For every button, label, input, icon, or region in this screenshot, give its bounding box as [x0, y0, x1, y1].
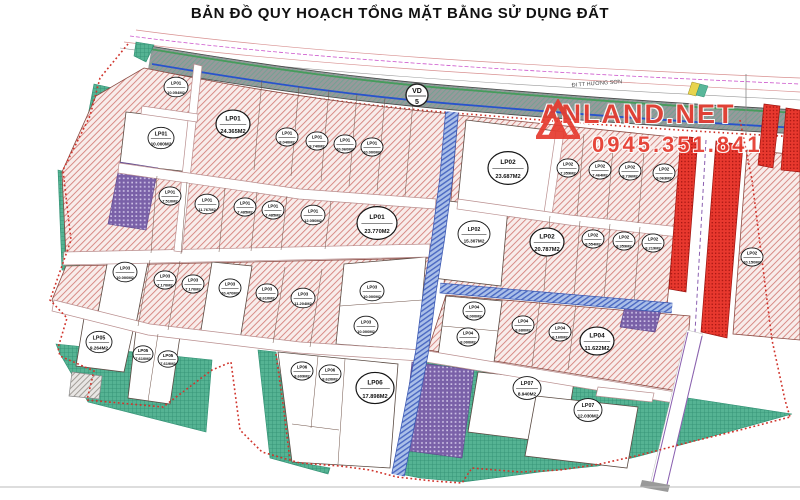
- plot-code: LP03: [188, 278, 199, 283]
- plot-code: LP03: [361, 319, 372, 324]
- plot-area: 9.740M2: [309, 143, 325, 148]
- plot-marker-lp01: LP0124.365M2: [216, 110, 250, 138]
- plot-code: LP01: [367, 141, 378, 146]
- plot-marker-lp06: LP0617.898M2: [356, 372, 394, 403]
- plot-area: 8.620M2: [322, 376, 338, 381]
- plot-area: 7.485M2: [237, 209, 253, 214]
- plot-area: 8.000M2: [460, 339, 476, 344]
- plot-code: LP01: [340, 138, 351, 143]
- planning-map-page: LP0110.054M2LP0110.000M2LP0124.365M2LP01…: [0, 0, 800, 500]
- plot-area: 10.000M2: [363, 149, 382, 154]
- plot-marker-lp04: LP048.000M2: [463, 302, 485, 320]
- plot-area: 10.000M2: [357, 329, 376, 334]
- plot-marker-lp02: LP0223.687M2: [488, 152, 528, 185]
- direction-label-ne: ĐI TT HƯƠNG SƠN: [571, 79, 622, 89]
- plot-area: 11.204M2: [294, 301, 312, 306]
- watermark-phone: 0945.351.841: [592, 132, 800, 158]
- pink-block-east: [733, 150, 800, 340]
- plot-code: LP01: [369, 214, 385, 221]
- plot-marker-lp05: LP059.264M2: [86, 331, 112, 352]
- plot-code: LP01: [225, 116, 241, 123]
- plot-marker-lp03: LP0311.204M2: [291, 288, 315, 308]
- plot-code: LP01: [308, 208, 319, 213]
- plot-marker-lp07: LP0712.030M2: [574, 399, 602, 422]
- plot-code: LP04: [463, 331, 474, 336]
- plot-area: 10.470M2: [221, 290, 240, 295]
- plot-area: 8.736M2: [622, 173, 638, 178]
- vd-road-marker: VD 5: [406, 84, 428, 106]
- survey-flags: [688, 82, 708, 97]
- plot-marker-lp01: LP017.485M2: [234, 198, 256, 216]
- plot-area: 10.000M2: [151, 141, 172, 146]
- watermark: ANLAND.NET 0945.351.841: [536, 99, 800, 158]
- plot-code: LP02: [619, 235, 630, 240]
- plot-code: LP03: [120, 265, 131, 270]
- plot-code: LP02: [588, 233, 599, 238]
- plot-area: 11.767M2: [198, 207, 216, 212]
- plot-code: LP01: [171, 80, 182, 85]
- plot-area: 7.485M2: [265, 212, 281, 217]
- plot-code: LP07: [582, 403, 595, 409]
- plot-marker-lp01: LP0110.000M2: [148, 127, 174, 148]
- plot-marker-lp01: LP0123.770M2: [357, 207, 397, 240]
- plot-marker-lp03: LP0310.000M2: [113, 262, 137, 282]
- plot-code: LP02: [595, 164, 606, 169]
- plot-marker-lp04: LP046.160M2: [549, 323, 571, 341]
- plot-marker-lp04: LP048.000M2: [457, 328, 479, 346]
- plot-code: LP02: [659, 167, 670, 172]
- plot-marker-lp06: LP068.609M2: [291, 362, 313, 380]
- plot-marker-lp03: LP0310.000M2: [360, 281, 384, 301]
- plot-marker-lp05: LP057.610M2: [133, 346, 153, 362]
- plot-area: 23.687M2: [495, 174, 520, 180]
- plot-area: 8.219M2: [645, 245, 661, 250]
- plot-area: 24.365M2: [220, 129, 245, 135]
- plot-code: LP04: [589, 333, 605, 340]
- plot-area: 23.770M2: [364, 229, 389, 235]
- plot-area: 7.510M2: [162, 198, 178, 203]
- plot-area: 7.170M2: [185, 286, 201, 291]
- plot-marker-lp04: LP0411.622M2: [580, 327, 614, 355]
- plot-code: LP03: [160, 274, 171, 279]
- white-block: [336, 257, 426, 350]
- plot-area: 8.040M2: [279, 139, 295, 144]
- plot-area: 9.264M2: [90, 345, 109, 350]
- plot-area: 10.000M2: [116, 275, 135, 280]
- plot-marker-lp01: LP017.510M2: [159, 187, 181, 205]
- plot-code: LP04: [518, 319, 529, 324]
- plot-code: LP01: [155, 131, 168, 137]
- plot-marker-lp01: LP0110.060M2: [334, 135, 356, 153]
- plot-code: LP01: [312, 135, 323, 140]
- plot-area: 7.610M2: [135, 356, 151, 361]
- plot-code: LP05: [93, 335, 106, 341]
- plot-area: 6.160M2: [552, 334, 568, 339]
- plot-code: LP03: [225, 282, 236, 287]
- plot-marker-lp03: LP038.610M2: [256, 284, 278, 302]
- vd-marker-text: VD: [412, 88, 422, 95]
- plot-marker-lp02: LP0215.307M2: [458, 221, 490, 247]
- plot-area: 8.610M2: [259, 295, 275, 300]
- plot-code: LP03: [298, 291, 309, 296]
- plot-code: LP05: [163, 353, 174, 358]
- plot-marker-lp01: LP0110.000M2: [361, 138, 383, 156]
- plot-area: 10.054M2: [167, 90, 186, 95]
- plot-area: 8.680M2: [515, 327, 531, 332]
- plot-marker-lp06: LP068.620M2: [319, 365, 341, 383]
- plot-area: 10.000M2: [363, 294, 382, 299]
- plot-area: 8.000M2: [466, 313, 482, 318]
- plot-marker-lp02: LP029.063M2: [653, 164, 675, 182]
- plot-marker-lp01: LP018.040M2: [276, 128, 298, 146]
- plot-code: LP02: [625, 165, 636, 170]
- plot-marker-lp03: LP0310.000M2: [354, 316, 378, 336]
- plot-marker-lp02: LP0220.787M2: [530, 228, 564, 256]
- plot-area: 7.359M2: [560, 170, 576, 175]
- plot-area: 11.622M2: [585, 346, 610, 352]
- plot-code: LP02: [648, 237, 659, 242]
- plot-marker-lp01: LP0111.767M2: [195, 194, 219, 214]
- plot-area: 7.464M2: [592, 172, 608, 177]
- plot-marker-lp03: LP037.170M2: [154, 271, 176, 289]
- plot-code: LP02: [500, 159, 516, 166]
- plot-code: LP01: [282, 131, 293, 136]
- plot-code: LP02: [539, 234, 555, 241]
- map-canvas: LP0110.054M2LP0110.000M2LP0124.365M2LP01…: [0, 0, 800, 500]
- plot-area: 20.787M2: [534, 247, 559, 253]
- plot-marker-lp02: LP027.359M2: [557, 159, 579, 177]
- plot-area: 15.307M2: [464, 239, 485, 244]
- plot-marker-lp03: LP0310.470M2: [219, 279, 241, 297]
- plot-area: 10.150M2: [743, 259, 762, 264]
- plot-area: 7.170M2: [157, 282, 173, 287]
- plot-code: LP05: [138, 348, 149, 353]
- plot-code: LP07: [521, 381, 534, 387]
- plot-marker-lp02: LP028.554M2: [582, 230, 604, 248]
- plot-marker-lp02: LP028.359M2: [613, 232, 635, 250]
- plot-area: 9.063M2: [656, 175, 672, 180]
- plot-marker-lp01: LP017.485M2: [262, 201, 284, 219]
- plot-code: LP03: [367, 284, 378, 289]
- plot-marker-lp01: LP019.740M2: [306, 132, 328, 150]
- plot-marker-lp02: LP0210.150M2: [741, 248, 763, 266]
- plot-marker-lp01: LP0112.050M2: [301, 205, 325, 225]
- plot-area: 8.554M2: [585, 241, 601, 246]
- plot-marker-lp03: LP037.170M2: [182, 275, 204, 293]
- plot-area: 8.359M2: [616, 243, 632, 248]
- plot-area: 8.940M2: [518, 392, 537, 397]
- plot-area: 7.619M2: [160, 361, 176, 366]
- plot-marker-lp05: LP057.619M2: [158, 351, 178, 367]
- plot-marker-lp02: LP028.736M2: [619, 162, 641, 180]
- plot-code: LP04: [555, 326, 566, 331]
- plot-marker-lp01: LP0110.054M2: [164, 77, 188, 97]
- plot-code: LP06: [297, 365, 308, 370]
- gray-hatch-pad: [69, 372, 102, 399]
- plot-code: LP04: [469, 305, 480, 310]
- plot-code: LP02: [468, 227, 481, 233]
- plot-area: 12.030M2: [578, 414, 599, 419]
- plot-code: LP01: [202, 197, 213, 202]
- page-title: BẢN ĐỒ QUY HOẠCH TỔNG MẶT BẰNG SỬ DỤNG Đ…: [0, 5, 800, 22]
- plot-code: LP02: [747, 251, 758, 256]
- plot-marker-lp04: LP048.680M2: [512, 316, 534, 334]
- plot-area: 17.898M2: [362, 394, 387, 400]
- plot-area: 8.609M2: [294, 373, 310, 378]
- plot-marker-lp07: LP078.940M2: [513, 377, 541, 400]
- plot-code: LP02: [563, 162, 574, 167]
- plot-code: LP03: [262, 287, 273, 292]
- plot-marker-lp02: LP028.219M2: [642, 234, 664, 252]
- plot-marker-lp02: LP027.464M2: [589, 161, 611, 179]
- vd-marker-number: 5: [415, 99, 419, 106]
- plot-code: LP01: [268, 204, 279, 209]
- plot-code: LP01: [165, 190, 176, 195]
- plot-code: LP06: [325, 368, 336, 373]
- plot-area: 12.050M2: [304, 218, 323, 223]
- plot-code: LP06: [367, 379, 383, 386]
- plot-code: LP01: [240, 201, 251, 206]
- plot-area: 10.060M2: [336, 146, 355, 151]
